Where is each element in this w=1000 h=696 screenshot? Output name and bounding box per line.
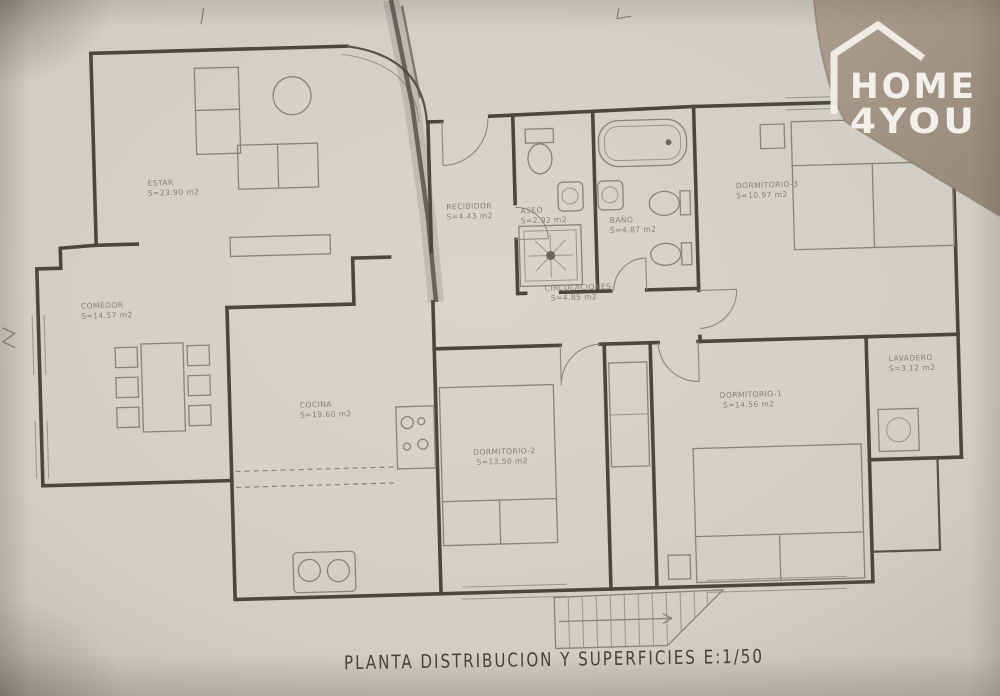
- room-area: S=4.85 m2: [551, 292, 598, 302]
- room-label: COMEDOR: [81, 300, 124, 310]
- room-label: CIRCULACIONES: [544, 282, 611, 293]
- room-area: S=23.90 m2: [148, 187, 200, 197]
- room-label: DORMITORIO-2: [473, 446, 536, 457]
- room-area: S=14.57 m2: [81, 310, 133, 320]
- room-area: S=14.56 m2: [723, 399, 775, 409]
- estar-bottom-stub: [96, 244, 137, 245]
- room-label: ASEO: [520, 206, 543, 216]
- logo-text-home: HOME: [850, 67, 977, 107]
- room-area: S=3.12 m2: [889, 363, 936, 373]
- room-label: RECIBIDOR: [446, 201, 492, 211]
- room-area: S=19.60 m2: [300, 409, 352, 419]
- room-label: BAÑO: [610, 215, 634, 225]
- room-label: ESTAR: [147, 178, 174, 188]
- room-area: S=4.43 m2: [446, 211, 493, 221]
- room-area: S=13.50 m2: [476, 456, 528, 466]
- room-area: S=2.92 m2: [521, 215, 568, 225]
- lavadero-bottom-wall: [869, 457, 961, 460]
- floor-plan-canvas: ESTAR S=23.90 m2 COMEDOR S=14.57 m2 COCI…: [0, 0, 1000, 696]
- room-area: S=10.97 m2: [736, 190, 788, 200]
- room-label: DORMITORIO-3: [736, 180, 799, 191]
- room-label: LAVADERO: [889, 353, 933, 363]
- room-area: S=4.87 m2: [610, 225, 657, 235]
- scanned-floor-plan-photo: ESTAR S=23.90 m2 COMEDOR S=14.57 m2 COCI…: [0, 0, 1000, 696]
- room-label: COCINA: [300, 400, 333, 410]
- room-label: DORMITORIO-1: [720, 389, 783, 400]
- logo-text-4you: 4YOU: [850, 102, 977, 142]
